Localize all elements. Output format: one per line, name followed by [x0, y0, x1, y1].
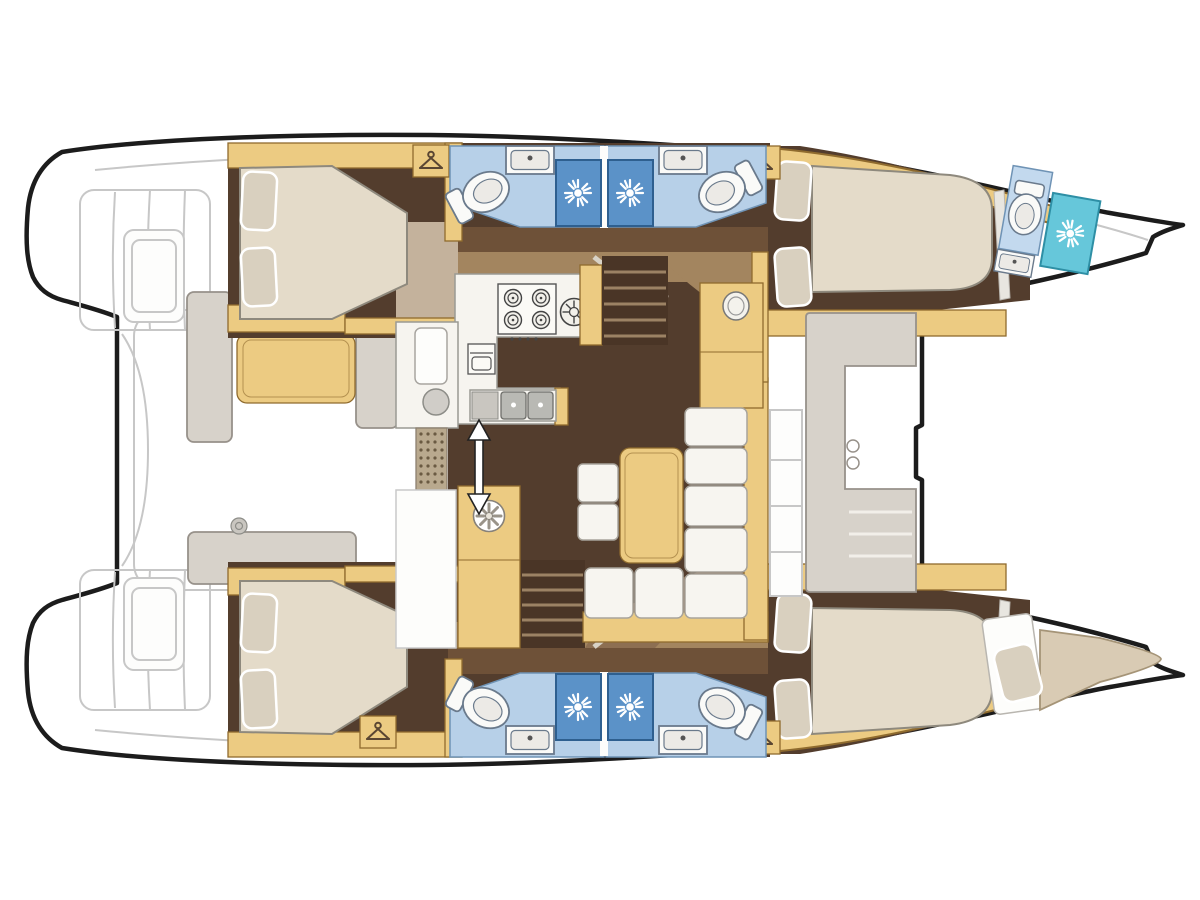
saloon-fwd-door: [770, 410, 802, 596]
sideboard-basin: [723, 292, 749, 320]
sofa-cushion: [685, 486, 747, 526]
sofa-cushion: [685, 574, 747, 618]
pillow: [774, 247, 812, 307]
pillow: [241, 247, 278, 307]
cockpit-table: [237, 334, 355, 403]
double-bed-mattress: [812, 608, 992, 734]
sofa-cushion: [635, 568, 683, 618]
cockpit-bench-side: [187, 292, 232, 442]
port-companionway-stairs: [580, 256, 668, 345]
sofa-cushion: [585, 568, 633, 618]
pillow: [241, 669, 278, 729]
cupholder: [847, 457, 859, 469]
cockpit-bench-forward: [356, 326, 398, 428]
port-hull-bathrooms: [444, 146, 766, 228]
sofa-cushion: [685, 408, 747, 446]
cutting-board: [415, 328, 447, 384]
pillow: [241, 171, 278, 231]
washbasin: [506, 146, 554, 174]
washbasin: [659, 726, 707, 754]
saloon-table: [620, 448, 683, 563]
washbasin: [659, 146, 707, 174]
wardrobe: [360, 716, 396, 748]
pillow: [774, 593, 812, 653]
stbd-companionway-stairs: [520, 560, 585, 648]
sofa-cushion: [685, 528, 747, 572]
pillow: [241, 593, 278, 653]
cupholder: [847, 440, 859, 452]
bar-sink: [423, 389, 449, 415]
catamaran-floorplan: [0, 0, 1200, 900]
floorplan-svg: [0, 0, 1200, 900]
stbd-hull-bathrooms: [444, 672, 766, 757]
washbasin: [506, 726, 554, 754]
wardrobe: [413, 145, 449, 177]
bow-berth-mattress: [1040, 630, 1161, 710]
aft-wall-panel: [396, 490, 456, 648]
double-bed-mattress: [812, 166, 992, 292]
sofa-cushion: [685, 448, 747, 484]
stool: [578, 504, 618, 540]
stool: [578, 464, 618, 502]
